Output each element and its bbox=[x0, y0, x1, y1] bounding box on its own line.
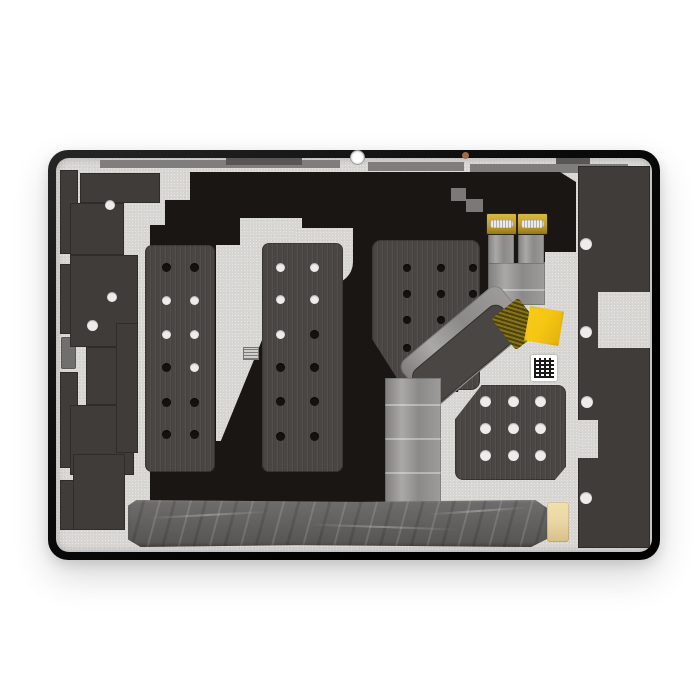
top-edge-trim bbox=[368, 162, 464, 171]
foam-pad-1 bbox=[145, 245, 215, 472]
flex-connector-1 bbox=[486, 213, 517, 235]
screw-hole bbox=[107, 292, 117, 302]
pad-hole bbox=[310, 397, 319, 406]
pad-hole bbox=[310, 295, 319, 304]
pad-hole bbox=[508, 396, 519, 407]
pad-hole bbox=[276, 397, 285, 406]
pad-hole bbox=[508, 450, 519, 461]
pad-hole bbox=[310, 432, 319, 441]
bottom-grip-tape bbox=[128, 500, 548, 547]
flex-connector-2 bbox=[517, 213, 548, 235]
pad-hole bbox=[535, 423, 546, 434]
qr-code-pattern bbox=[534, 358, 554, 378]
right-adhesive-strip bbox=[578, 166, 650, 548]
copper-contact-dot bbox=[462, 152, 469, 159]
pad-hole bbox=[276, 432, 285, 441]
tape-crease bbox=[428, 507, 528, 516]
top-edge-trim bbox=[100, 160, 340, 168]
right-strip-notch bbox=[598, 292, 650, 348]
pad-hole bbox=[480, 396, 491, 407]
pad-hole bbox=[480, 450, 491, 461]
flex-ribbon-right bbox=[518, 231, 544, 267]
pad-hole bbox=[276, 363, 285, 372]
pad-hole bbox=[162, 430, 171, 439]
pad-hole bbox=[190, 330, 199, 339]
connector-pins bbox=[490, 220, 513, 228]
pad-hole bbox=[437, 264, 445, 272]
pad-hole bbox=[276, 295, 285, 304]
pad-hole bbox=[310, 263, 319, 272]
pad-hole bbox=[162, 363, 171, 372]
pad-hole bbox=[508, 423, 519, 434]
screw-hole bbox=[581, 396, 593, 408]
pad-hole bbox=[190, 430, 199, 439]
pad-hole bbox=[162, 263, 171, 272]
qr-code-sticker bbox=[531, 355, 557, 381]
camera-opening bbox=[350, 150, 365, 165]
screw-hole bbox=[580, 326, 592, 338]
kapton-tape bbox=[524, 306, 564, 346]
screw-hole bbox=[580, 238, 592, 250]
tape-crease bbox=[308, 523, 458, 530]
top-edge-trim-dark bbox=[226, 158, 302, 165]
pad-hole bbox=[310, 330, 319, 339]
pad-hole bbox=[403, 264, 411, 272]
pad-hole bbox=[535, 396, 546, 407]
micro-label-sticker bbox=[243, 347, 259, 360]
pad-hole bbox=[190, 296, 199, 305]
connector-pins bbox=[521, 220, 544, 228]
pad-hole bbox=[162, 398, 171, 407]
shield-step-patch bbox=[466, 199, 483, 212]
pad-hole bbox=[190, 363, 199, 372]
photo-background bbox=[0, 0, 700, 700]
pad-hole bbox=[535, 450, 546, 461]
left-adhesive-bracket-strip bbox=[116, 323, 138, 453]
screw-hole bbox=[87, 320, 98, 331]
pad-hole bbox=[190, 398, 199, 407]
pad-hole bbox=[162, 330, 171, 339]
top-edge-trim-dark bbox=[556, 158, 590, 164]
pad-hole bbox=[480, 423, 491, 434]
pad-hole bbox=[276, 330, 285, 339]
left-adhesive-bracket bbox=[70, 203, 124, 255]
pad-hole bbox=[190, 263, 199, 272]
pad-hole bbox=[403, 316, 411, 324]
pad-hole bbox=[162, 296, 171, 305]
back-panel bbox=[56, 158, 652, 552]
right-strip-notch bbox=[578, 420, 598, 458]
pad-hole bbox=[310, 363, 319, 372]
flex-ribbon-left bbox=[488, 231, 514, 267]
foam-pad-4 bbox=[455, 385, 566, 480]
tablet-display-assembly bbox=[48, 150, 660, 560]
pad-hole bbox=[403, 344, 411, 352]
screw-hole bbox=[580, 492, 592, 504]
pad-hole bbox=[403, 290, 411, 298]
tape-crease bbox=[148, 511, 268, 519]
left-adhesive-bracket bbox=[73, 454, 125, 530]
shield-step-patch bbox=[451, 188, 466, 201]
pad-hole bbox=[437, 316, 445, 324]
tan-adhesive-pad bbox=[547, 502, 569, 542]
flex-cable-vertical bbox=[385, 378, 441, 514]
foam-pad-2 bbox=[262, 243, 343, 472]
pad-hole bbox=[469, 290, 477, 298]
screw-hole bbox=[105, 200, 115, 210]
pad-hole bbox=[276, 263, 285, 272]
pad-hole bbox=[469, 264, 477, 272]
pad-hole bbox=[437, 290, 445, 298]
left-adhesive-bracket bbox=[80, 173, 160, 203]
